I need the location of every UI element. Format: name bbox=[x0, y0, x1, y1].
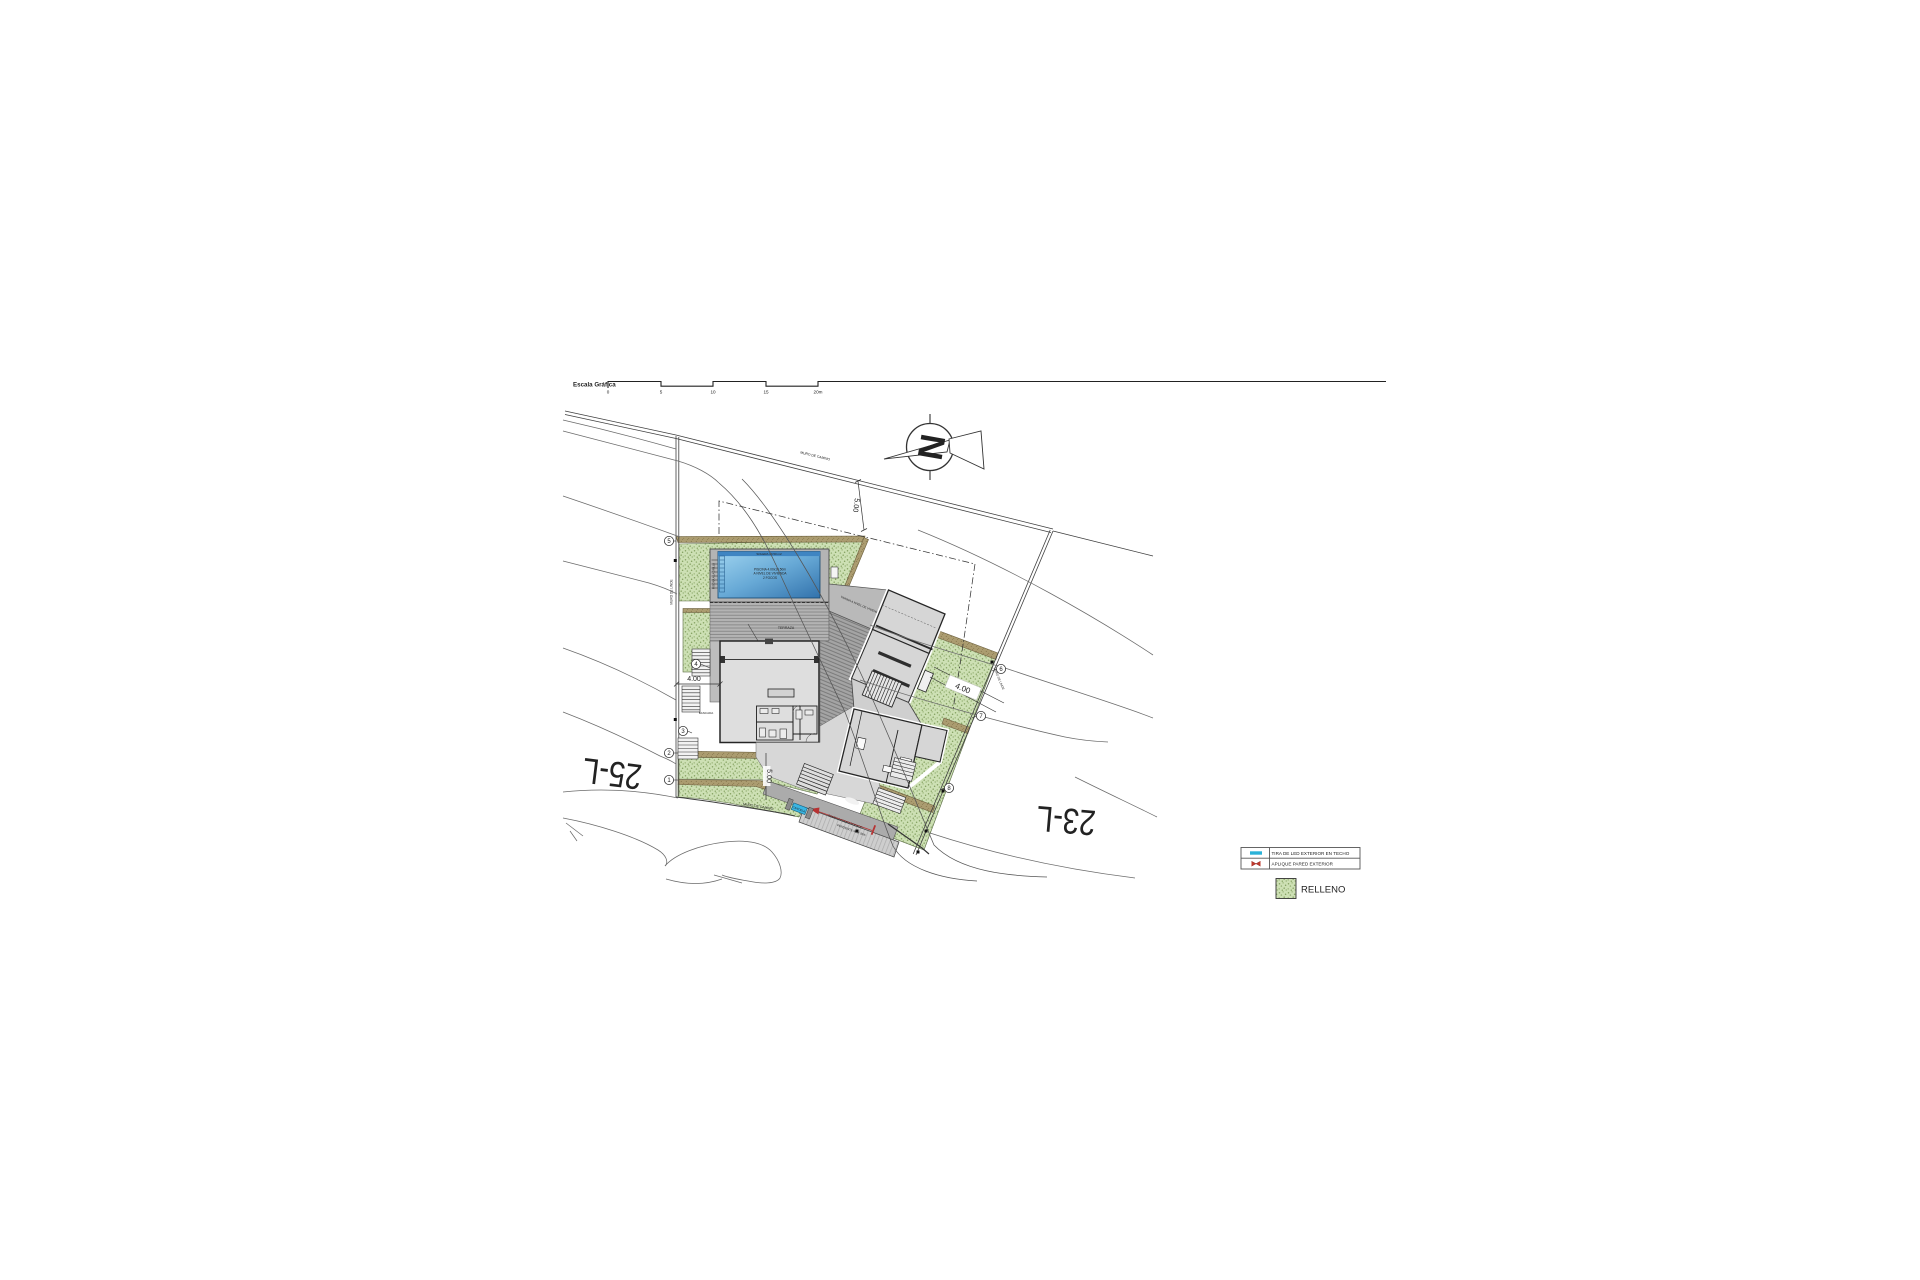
svg-text:RELLENO: RELLENO bbox=[1301, 885, 1345, 896]
svg-text:20m: 20m bbox=[814, 390, 823, 395]
svg-text:15: 15 bbox=[763, 390, 769, 395]
svg-text:APLIQUE PARED EXTERIOR: APLIQUE PARED EXTERIOR bbox=[1272, 862, 1334, 867]
svg-text:23-L: 23-L bbox=[1035, 798, 1097, 843]
svg-text:Escala Gráfica: Escala Gráfica bbox=[573, 382, 616, 389]
svg-text:5: 5 bbox=[660, 390, 663, 395]
svg-text:25-L: 25-L bbox=[580, 750, 644, 797]
svg-text:4.00: 4.00 bbox=[687, 676, 701, 683]
svg-text:TERRAZA: TERRAZA bbox=[778, 626, 795, 630]
svg-text:BANCADA: BANCADA bbox=[699, 711, 714, 715]
svg-text:2 FOCOS: 2 FOCOS bbox=[763, 576, 777, 580]
svg-text:5.00: 5.00 bbox=[765, 769, 775, 783]
svg-text:0: 0 bbox=[607, 390, 610, 395]
svg-text:MURO DE LINDE: MURO DE LINDE bbox=[670, 579, 674, 604]
svg-text:PISCINA A LA ORILLA: PISCINA A LA ORILLA bbox=[712, 563, 716, 589]
svg-text:TIRA DE LED EXTERIOR EN TECHO: TIRA DE LED EXTERIOR EN TECHO bbox=[1272, 851, 1350, 856]
svg-text:SOLERA 10.50 m2: SOLERA 10.50 m2 bbox=[756, 552, 782, 556]
svg-text:10: 10 bbox=[710, 390, 716, 395]
svg-text:5.00: 5.00 bbox=[851, 498, 862, 513]
